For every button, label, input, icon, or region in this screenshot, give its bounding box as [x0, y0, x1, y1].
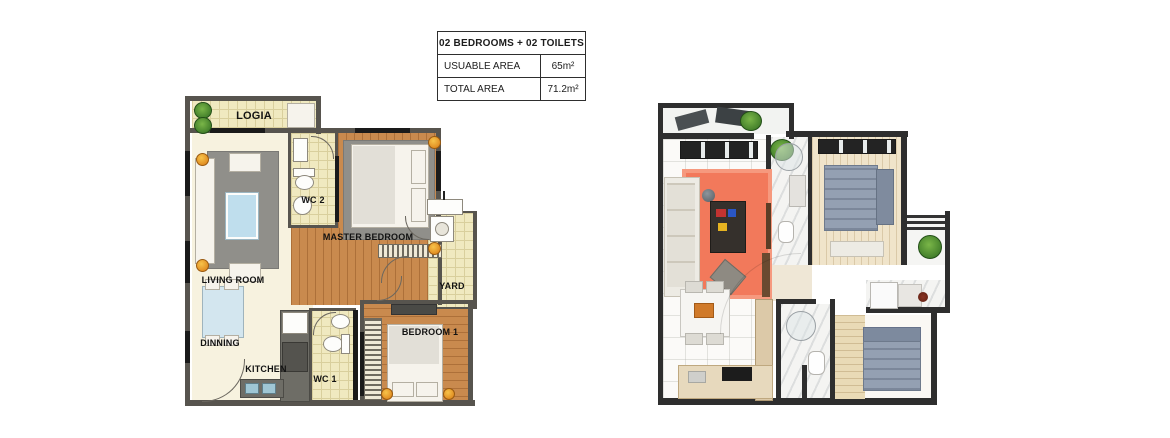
wall-segment	[786, 131, 908, 137]
plant-red-icon	[918, 292, 928, 302]
toilet-icon	[323, 336, 343, 352]
bed-bench-3d	[830, 241, 884, 257]
sofa-cushions	[667, 183, 695, 287]
shower-3d	[786, 311, 816, 341]
lamp-icon	[428, 242, 441, 255]
floor-plan-page: 02 BEDROOMS + 02 TOILETS USUABLE AREA 65…	[0, 0, 1170, 438]
master-bed-blanket	[353, 146, 395, 224]
wall-segment	[808, 135, 812, 265]
shower-3d	[775, 143, 803, 171]
pillow	[392, 382, 414, 397]
room-label-logia: LOGIA	[236, 110, 272, 122]
room-label-wc1: WC 1	[313, 374, 336, 384]
pergola-slat	[907, 215, 945, 218]
wall-segment	[658, 133, 754, 139]
room-label-dinning: DINNING	[200, 338, 239, 348]
sink-3d	[688, 371, 706, 383]
plant-icon	[194, 117, 212, 134]
plant-icon	[740, 111, 762, 131]
chair	[685, 281, 703, 293]
room-label-living-room: LIVING ROOM	[202, 275, 265, 285]
window-segment	[185, 241, 190, 283]
stove-3d	[722, 367, 752, 381]
window-segment	[185, 151, 190, 196]
toilet-tank	[341, 334, 350, 354]
wall-segment	[468, 300, 473, 404]
plant-icon	[918, 235, 942, 259]
room-label-master-bedroom: MASTER BEDROOM	[323, 232, 413, 242]
window-segment	[355, 128, 410, 133]
total-area-value: 71.2m²	[541, 78, 585, 100]
room-label-bedroom1: BEDROOM 1	[402, 327, 458, 337]
master-bed-3d	[824, 165, 878, 231]
lamp-icon	[428, 136, 441, 149]
door-panel-3d	[766, 203, 771, 249]
pillow	[411, 150, 426, 184]
sink-basin	[245, 383, 259, 394]
coffee-table	[226, 193, 258, 239]
lamp-icon	[443, 388, 455, 400]
bedroom2-headboard-wall	[835, 315, 865, 399]
pillow	[416, 382, 438, 397]
bedroom1-wardrobe	[364, 318, 382, 400]
wall-segment	[901, 131, 907, 265]
wall-segment	[945, 211, 950, 311]
toilet-icon	[778, 221, 794, 243]
info-table-row-usable: USUABLE AREA 65m²	[438, 55, 585, 78]
dresser	[391, 304, 437, 315]
armchair	[229, 153, 261, 172]
bedroom2-bed-3d	[863, 341, 921, 391]
fridge	[282, 312, 308, 334]
ac-unit	[427, 199, 463, 215]
wall-segment	[309, 308, 356, 311]
room-label-wc2: WC 2	[301, 195, 324, 205]
chair	[706, 333, 724, 345]
info-table: 02 BEDROOMS + 02 TOILETS USUABLE AREA 65…	[437, 31, 586, 101]
book-blue	[728, 209, 736, 217]
book-red	[716, 209, 726, 217]
vanity-3d	[789, 175, 806, 207]
wall-segment	[185, 96, 321, 101]
wall-segment	[931, 311, 937, 404]
window-segment	[185, 331, 190, 363]
wall-stub	[802, 365, 807, 399]
window-segment	[210, 128, 265, 133]
floor-plan-2d: LOGIA LIVING ROOM WC 2 MASTER BEDROOM YA…	[185, 96, 481, 412]
pergola-slat	[907, 227, 945, 230]
toilet-icon	[808, 351, 825, 375]
wall-chunk	[436, 151, 441, 191]
toilet-icon	[295, 175, 314, 190]
room-label-kitchen: KITCHEN	[245, 364, 286, 374]
room-label-yard: YARD	[439, 281, 464, 291]
wall-segment	[658, 103, 663, 404]
sofa	[195, 158, 215, 264]
sink-basin	[262, 383, 276, 394]
pillows-3d	[876, 169, 894, 225]
chair	[706, 281, 724, 293]
washing-machine-3d	[870, 282, 898, 309]
washer-drum	[435, 222, 449, 236]
window-band	[680, 141, 758, 159]
chair	[685, 333, 703, 345]
lamp-icon	[381, 388, 393, 400]
wall-segment	[288, 133, 291, 228]
pergola-slat	[907, 221, 945, 224]
food-tray	[694, 303, 714, 318]
info-table-header: 02 BEDROOMS + 02 TOILETS	[438, 32, 585, 55]
logia-cabinet	[287, 103, 315, 128]
floor-plan-3d	[658, 103, 952, 433]
wc2-cabinet	[293, 138, 308, 162]
dining-table	[202, 286, 244, 338]
wall-chunk	[353, 310, 358, 400]
wall-segment	[658, 398, 937, 405]
window-band	[818, 139, 896, 154]
antenna	[443, 191, 445, 200]
wall-chunk	[335, 156, 339, 222]
lamp-icon	[196, 153, 209, 166]
lamp-icon	[196, 259, 209, 272]
book-yellow	[718, 223, 727, 231]
wall-segment	[473, 211, 477, 309]
usable-area-value: 65m²	[541, 55, 585, 77]
wall-segment	[291, 225, 338, 228]
usable-area-label: USUABLE AREA	[438, 55, 541, 77]
